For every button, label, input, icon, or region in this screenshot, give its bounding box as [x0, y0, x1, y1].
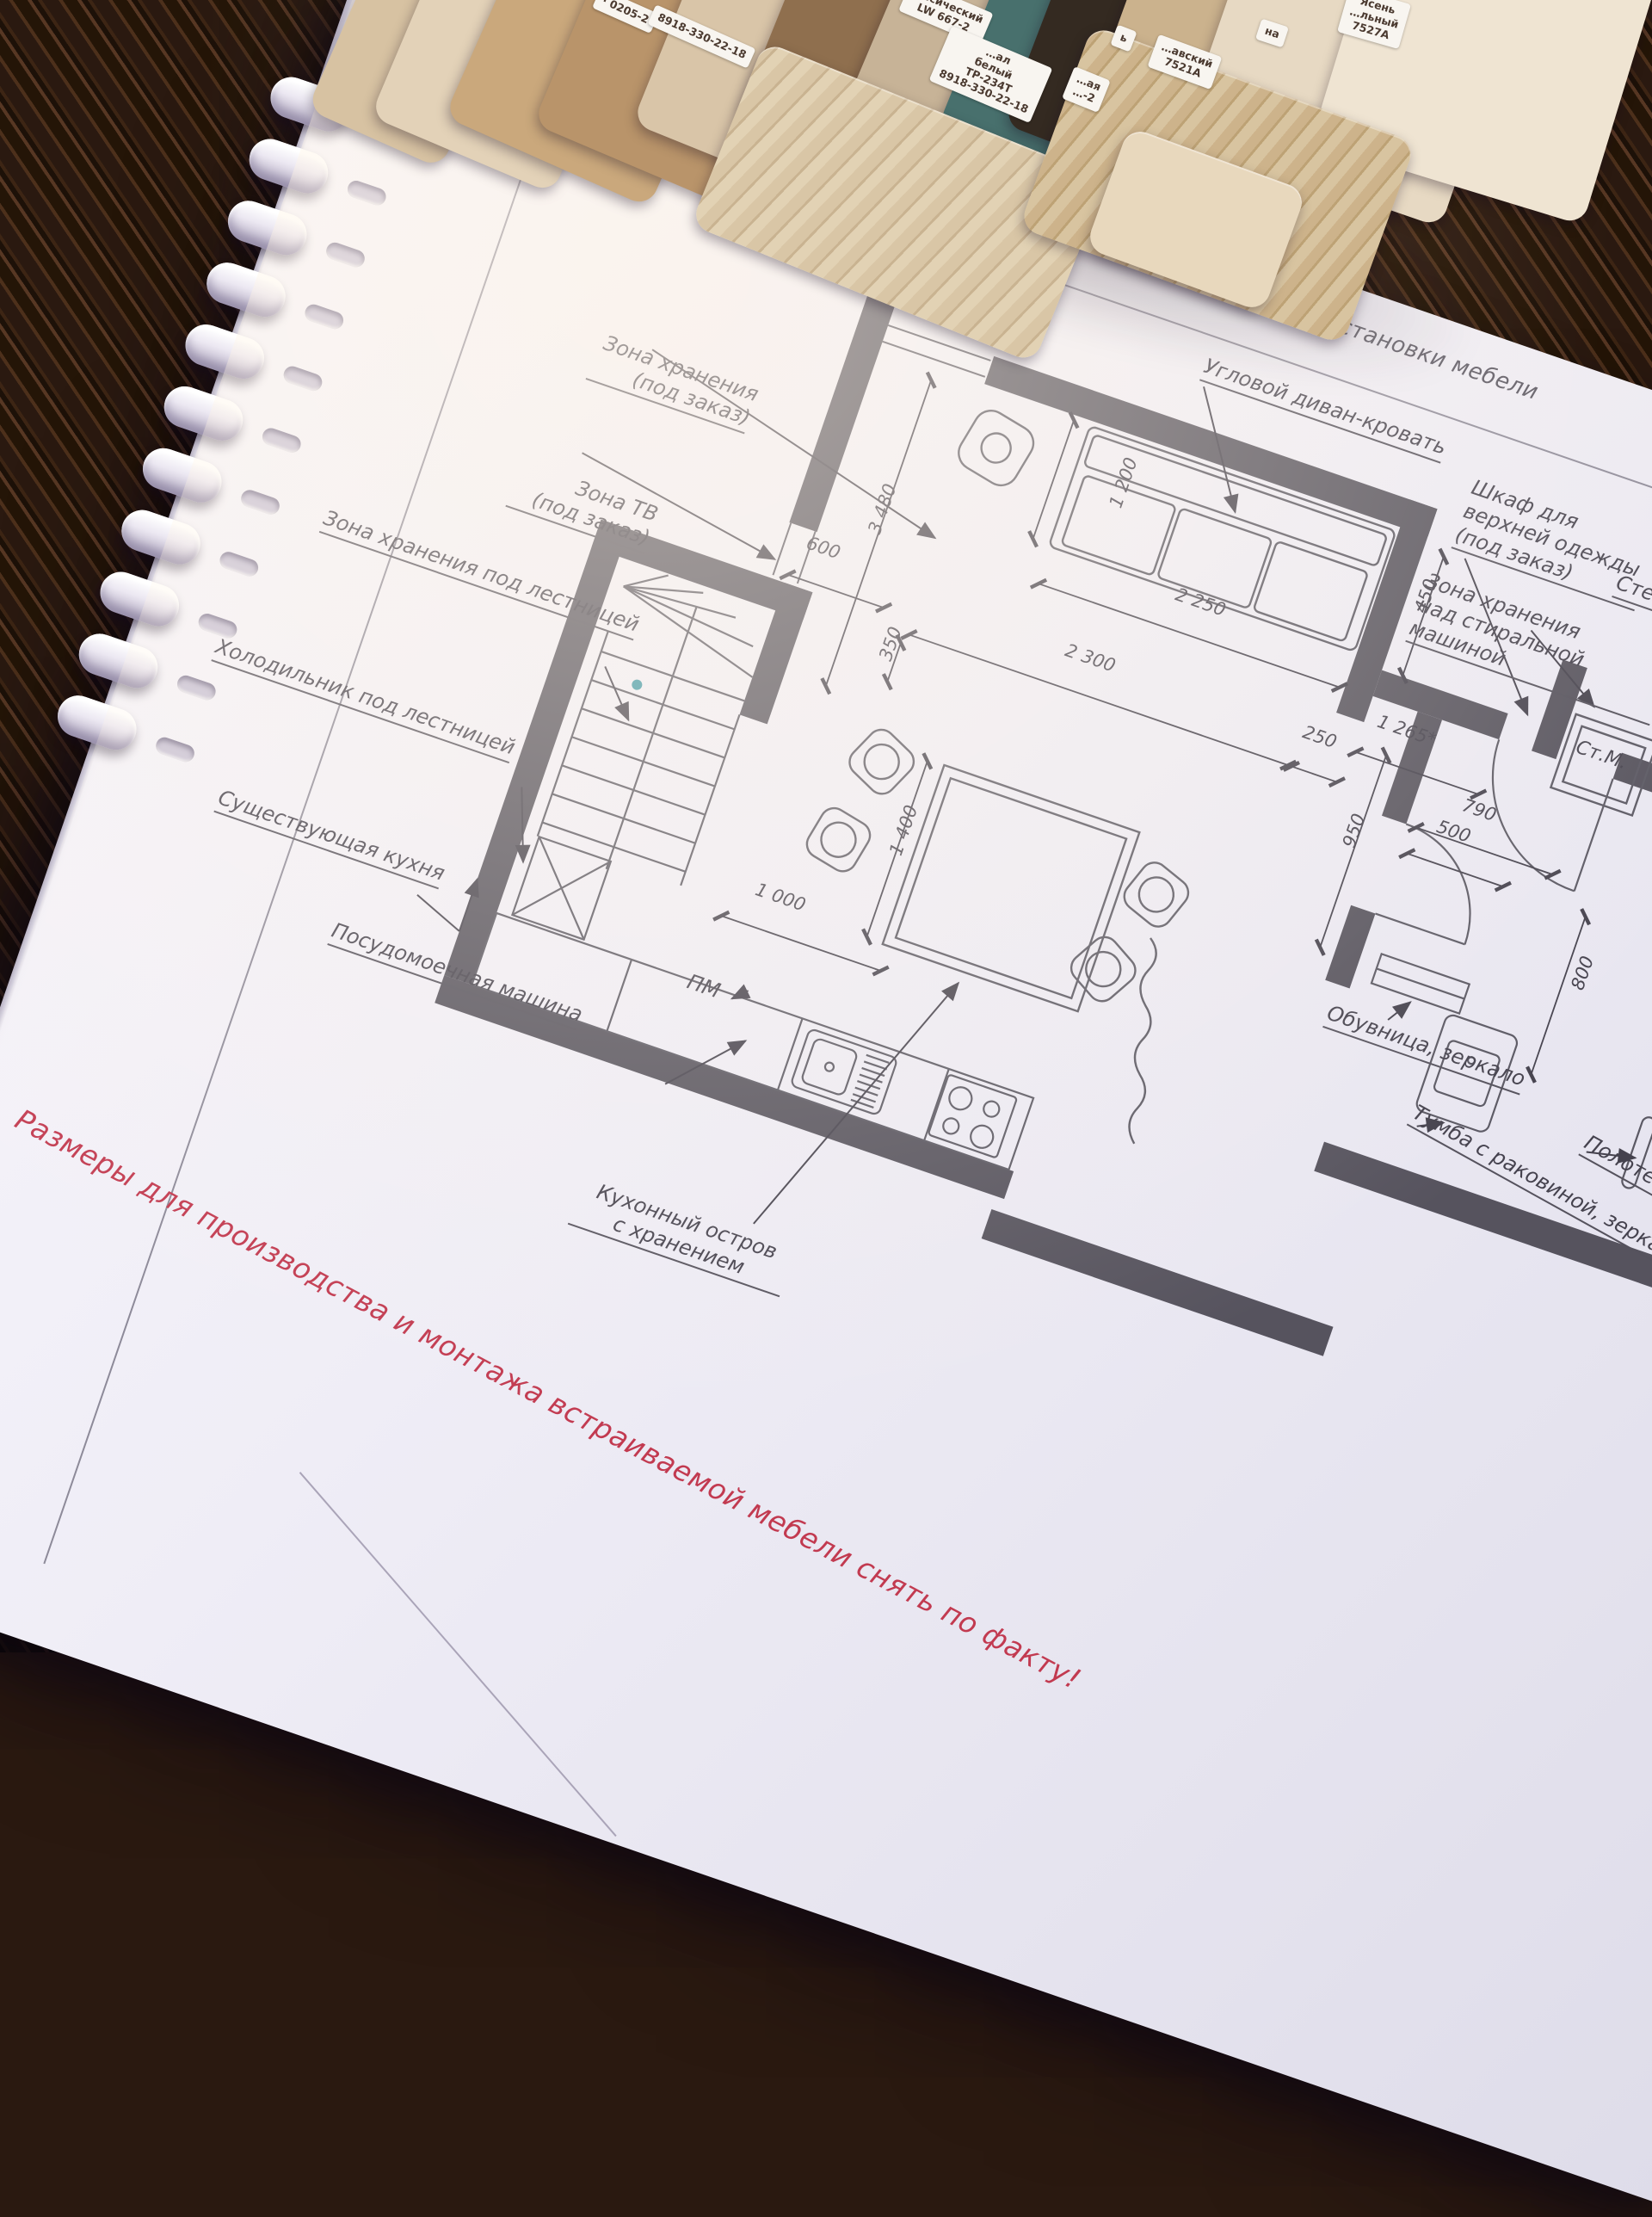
- material-samples-stack: · 0205-2 8918-330-22-18 …ссический LW 66…: [0, 0, 1652, 1652]
